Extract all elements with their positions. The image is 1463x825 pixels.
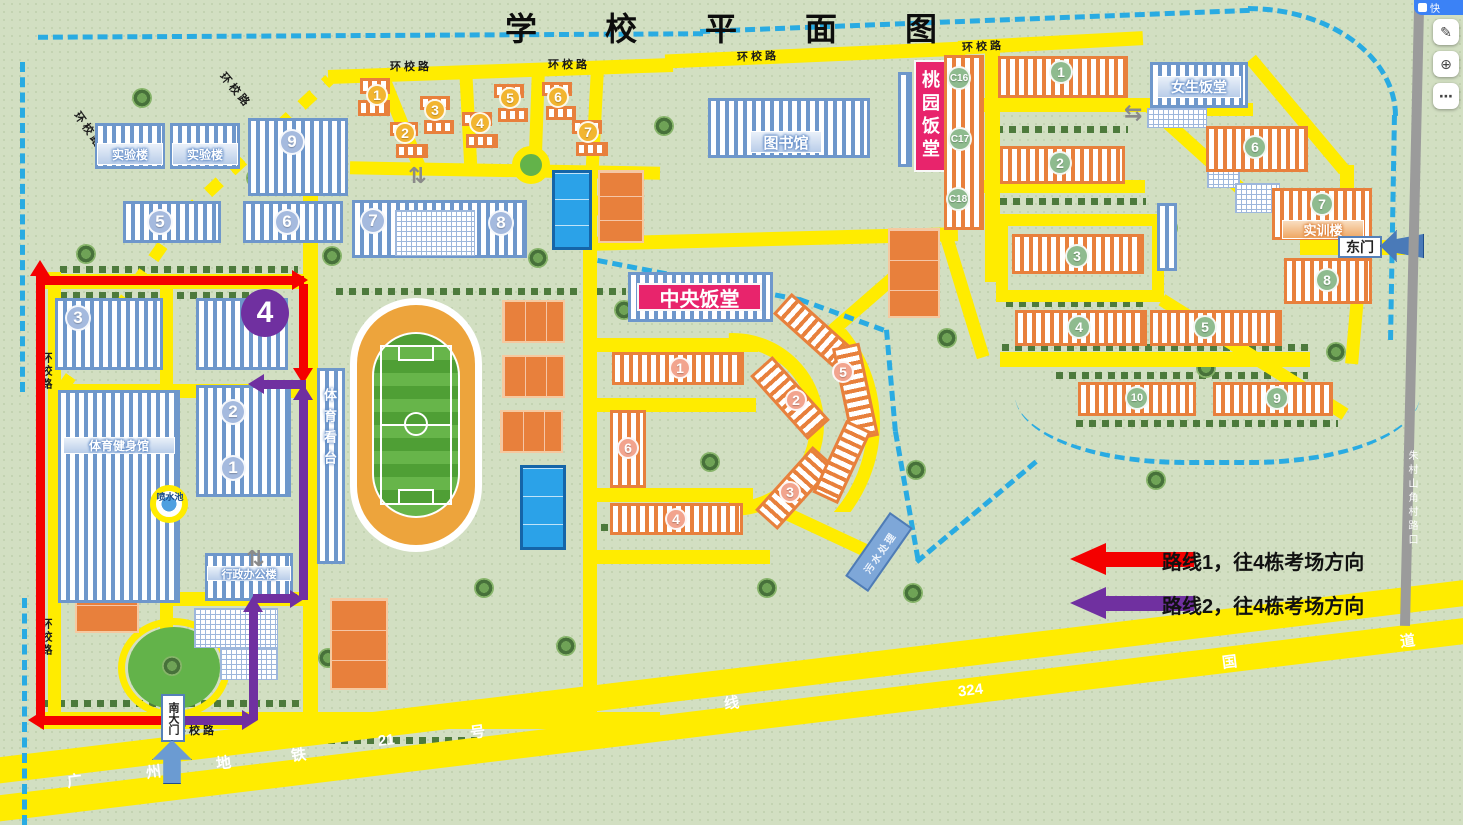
legend-route2-arrowhead [1070, 587, 1106, 619]
boundary-curve [1248, 6, 1398, 116]
crosswalk-arrows-icon: ⇅ [246, 546, 264, 572]
paved-plaza [395, 210, 475, 256]
paved-plaza [1147, 108, 1207, 128]
building-badge: 3 [1065, 244, 1089, 268]
road [583, 178, 597, 723]
zoom-in-icon: ⊕ [1440, 56, 1452, 73]
tennis-court [552, 170, 592, 250]
fountain [150, 485, 188, 523]
building-badge: 1 [220, 455, 246, 481]
highway-label-char: 道 [1399, 629, 1416, 652]
fountain-label: 喷水池 [154, 492, 186, 502]
dorm-building [424, 120, 454, 134]
building-badge: 5 [147, 209, 173, 235]
road-label: 环校路 [390, 58, 432, 74]
girls-canteen-label: 女生饭堂 [1157, 76, 1241, 98]
building-badge: 7 [577, 121, 599, 143]
basketball-courts [598, 170, 644, 243]
stands-label: 体育看台 [320, 388, 339, 472]
building-badge: 2 [785, 389, 807, 411]
penalty-box [398, 489, 434, 505]
building-badge: 1 [669, 357, 691, 379]
road-label: 环校路 [548, 56, 590, 72]
legend-route1-arrowhead [1070, 543, 1106, 575]
lab-label: 实验楼 [172, 143, 238, 165]
canteen-building [898, 72, 912, 167]
building-badge: 5 [832, 361, 854, 383]
road-label: 环校路 [216, 69, 255, 111]
more-options-button[interactable]: ⋯ [1433, 83, 1459, 109]
basketball-courts [502, 300, 565, 343]
building-badge: 5 [499, 87, 521, 109]
building-badge: 2 [394, 122, 416, 144]
road [585, 550, 770, 564]
route2-arrow-left [248, 374, 264, 394]
building-badge: 9 [1265, 386, 1289, 410]
bush [474, 578, 494, 598]
metro-label-char: 州 [145, 760, 162, 783]
metro-label-char: 广 [66, 769, 83, 792]
road [588, 488, 753, 502]
bush [757, 578, 777, 598]
metro-label-char: 21 [377, 731, 396, 750]
boundary-line [884, 330, 898, 432]
basketball-courts [502, 355, 565, 398]
metro-label-char: 线 [723, 691, 740, 714]
campus-map: 环校路 环校路 环校路 环校路 环校路 环校路 环校路 环校路 环校路 实验楼 … [0, 0, 1463, 825]
bush [556, 636, 576, 656]
basketball-courts [888, 228, 940, 318]
library-label: 图书馆 [750, 131, 822, 153]
boundary-line [20, 62, 25, 392]
east-gate-label: 东门 [1338, 236, 1382, 258]
route2-line [249, 612, 258, 720]
bush [937, 328, 957, 348]
dorm-building [466, 134, 498, 148]
building-badge: 3 [65, 305, 91, 331]
building-badge: 7 [1310, 192, 1334, 216]
central-canteen-label: 中央饭堂 [637, 283, 762, 311]
edit-image-button[interactable]: ✎ [1433, 19, 1459, 45]
dorm-building [576, 142, 608, 156]
route2-arrow-up [243, 596, 263, 612]
bush [76, 244, 96, 264]
boundary-line [915, 460, 1038, 564]
building-badge: 4 [1067, 315, 1091, 339]
dorm-building [546, 106, 576, 120]
route1-arrow-up [30, 260, 50, 276]
boundary-line [1388, 115, 1397, 340]
lab-label: 实验楼 [97, 143, 163, 165]
building-badge: 6 [274, 209, 300, 235]
bush [322, 246, 342, 266]
building-badge: 3 [779, 481, 801, 503]
more-icon: ⋯ [1439, 88, 1453, 105]
map-title: 学校平面图 [505, 4, 1005, 50]
highway-label-char: 国 [1221, 650, 1238, 673]
tennis-court [520, 465, 566, 550]
route2-arrow-up [293, 384, 313, 400]
building-badge: 1 [1049, 60, 1073, 84]
route1-line [36, 276, 304, 285]
bush [906, 460, 926, 480]
building-badge: 2 [1048, 151, 1072, 175]
pitch-center-circle [404, 412, 428, 436]
building-1-2 [196, 385, 291, 497]
boundary-line [22, 598, 27, 825]
building-badge: C16 [947, 66, 971, 90]
bush [903, 583, 923, 603]
building-badge: 10 [1125, 386, 1149, 410]
building-badge: 6 [617, 437, 639, 459]
crosswalk-arrows-icon: ⇆ [1124, 100, 1142, 126]
route2-arrow-right [242, 710, 258, 730]
building-badge: 8 [1315, 268, 1339, 292]
bush [1146, 470, 1166, 490]
route2-line [185, 716, 243, 725]
route2-line [299, 400, 308, 600]
quick-action-pill[interactable]: 快 [1414, 0, 1463, 15]
basketball-courts [330, 598, 388, 690]
legend-route1-text: 路线1，往4栋考场方向 [1162, 546, 1364, 575]
metro-label-char: 地 [215, 751, 232, 774]
route1-arrow-left [28, 710, 44, 730]
metro-label-char: 铁 [290, 743, 307, 766]
pill-label: 快 [1430, 0, 1440, 15]
dorm-building [396, 144, 428, 158]
building-badge: C18 [946, 187, 970, 211]
pill-icon [1418, 3, 1427, 12]
building-badge: C17 [948, 127, 972, 151]
building-badge: 7 [360, 208, 386, 234]
bush [700, 452, 720, 472]
building-badge: 3 [424, 99, 446, 121]
exam-building-marker: 4 [241, 289, 289, 337]
route1-line [36, 276, 45, 724]
basketball-courts [500, 410, 563, 453]
penalty-box [398, 345, 434, 361]
bush [528, 248, 548, 268]
bush [654, 116, 674, 136]
metro-label-char: 号 [469, 720, 486, 743]
zoom-in-button[interactable]: ⊕ [1433, 51, 1459, 77]
bush [132, 88, 152, 108]
route1-line [42, 716, 166, 725]
building-badge: 1 [366, 84, 388, 106]
building-badge: 8 [488, 210, 514, 236]
gym-label: 体育健身馆 [63, 437, 175, 454]
building-badge: 5 [1193, 315, 1217, 339]
hedge-row [60, 266, 298, 273]
building-badge: 2 [220, 399, 246, 425]
boundary-road-label: 朱村山角村路口 [1404, 450, 1419, 548]
hedge-row [1000, 198, 1146, 205]
building-badge: 4 [665, 508, 687, 530]
crosswalk-arrows-icon: ⇅ [408, 163, 426, 189]
sewage-label: 污水处理 [859, 528, 899, 576]
hedge-row [996, 126, 1128, 133]
dorm-building [498, 108, 528, 122]
building-badge: 6 [1243, 135, 1267, 159]
small-building [1157, 203, 1177, 271]
building-badge: 4 [469, 112, 491, 134]
building-badge: 6 [547, 86, 569, 108]
roundabout [512, 146, 550, 184]
paved-plaza [194, 608, 278, 648]
route1-arrow-right [292, 270, 308, 290]
taoyuan-canteen-label: 桃园饭堂 [914, 60, 946, 172]
highway-label-char: 324 [957, 681, 984, 701]
edit-icon: ✎ [1440, 24, 1452, 41]
building-badge: 9 [279, 129, 305, 155]
south-gate-label: 南大门 [161, 694, 185, 742]
route2-arrow-right [290, 590, 304, 608]
bush [162, 656, 182, 676]
route1-line [299, 284, 308, 368]
legend-route2-text: 路线2，往4栋考场方向 [1162, 590, 1364, 619]
